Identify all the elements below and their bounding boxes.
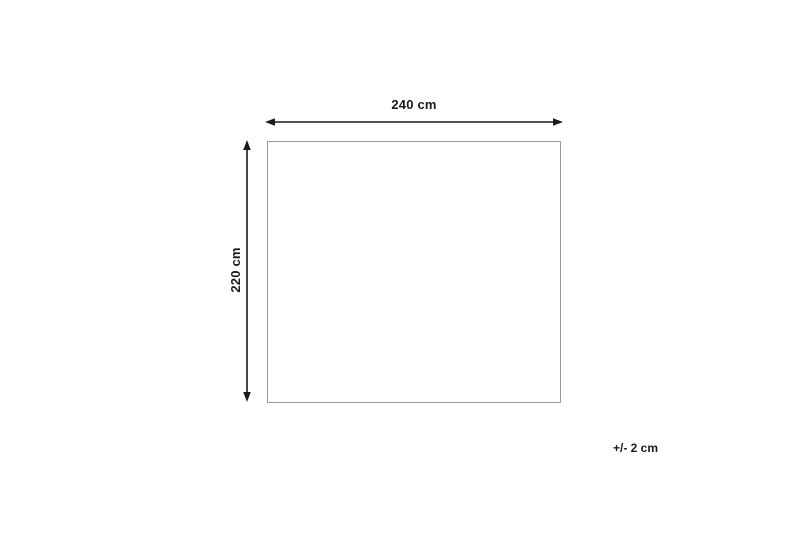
width-arrowhead-right <box>553 118 563 126</box>
height-dimension-arrow-icon <box>240 138 254 404</box>
height-arrowhead-top <box>243 140 251 150</box>
product-dimension-diagram: 240 cm 220 cm +/- 2 cm <box>0 0 800 533</box>
product-outline <box>267 141 561 403</box>
width-dimension-label: 240 cm <box>265 97 563 113</box>
height-arrowhead-bottom <box>243 392 251 402</box>
width-dimension-arrow-icon <box>263 115 565 129</box>
tolerance-note: +/- 2 cm <box>613 441 658 455</box>
width-arrowhead-left <box>265 118 275 126</box>
